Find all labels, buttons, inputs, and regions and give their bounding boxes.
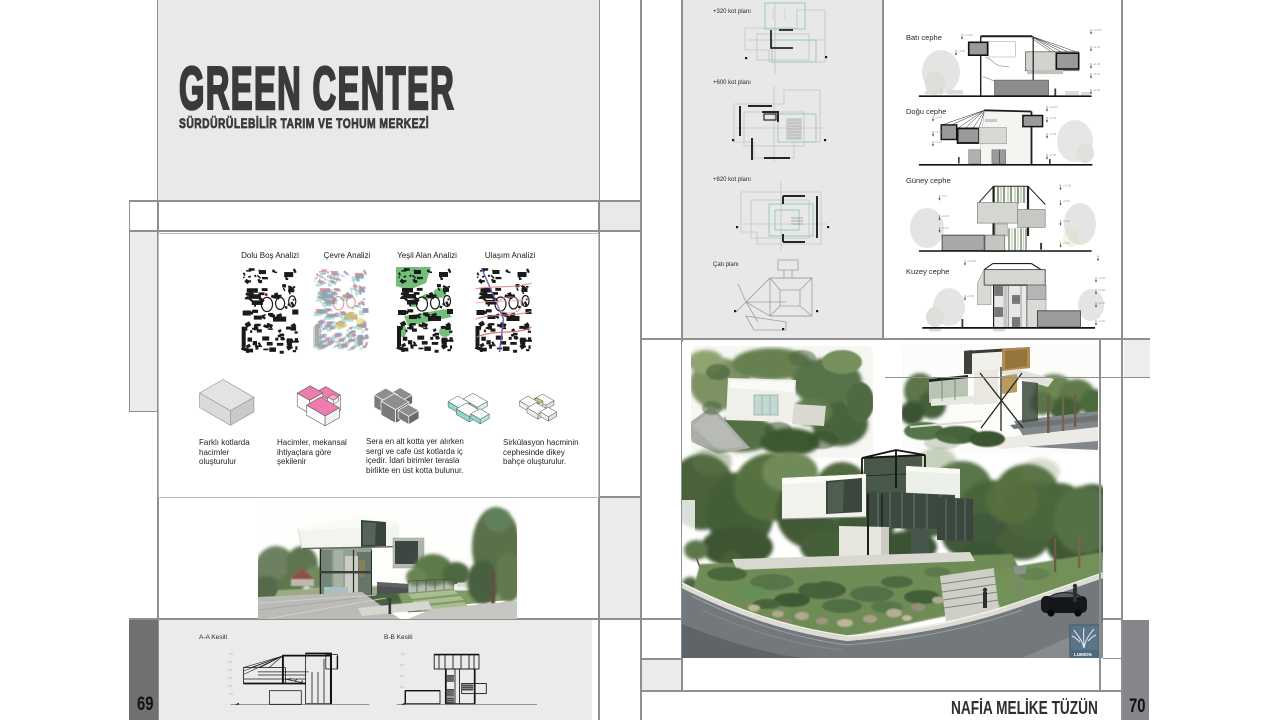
svg-text:+9.20: +9.20 <box>1063 199 1071 203</box>
svg-text:+6.00: +6.00 <box>1063 219 1071 223</box>
svg-text:+12.60: +12.60 <box>1049 105 1058 109</box>
svg-text:+0.00: +0.00 <box>1098 319 1105 323</box>
svg-text:+3.20: +3.20 <box>1098 301 1105 305</box>
svg-text:+6.00: +6.00 <box>942 214 950 218</box>
svg-text:+6.00: +6.00 <box>1098 288 1105 292</box>
svg-text:+3.20: +3.20 <box>1093 72 1101 76</box>
svg-text:+12.60: +12.60 <box>1063 184 1072 188</box>
svg-text:+6.00: +6.00 <box>967 294 975 298</box>
svg-text:+0.00: +0.00 <box>1093 88 1101 92</box>
svg-text:+6.00: +6.00 <box>1049 132 1057 136</box>
svg-text:+12.60: +12.60 <box>964 33 973 37</box>
svg-text:+6.00: +6.00 <box>1093 62 1101 66</box>
svg-text:LUMION: LUMION <box>1074 652 1092 657</box>
svg-text:+0.00: +0.00 <box>1049 153 1057 157</box>
svg-text:+12.60: +12.60 <box>1093 28 1102 32</box>
svg-text:+0.00: +0.00 <box>1063 241 1071 245</box>
svg-text:+3.20: +3.20 <box>935 140 943 144</box>
svg-text:+6.00: +6.00 <box>935 130 943 134</box>
svg-text:+12.60: +12.60 <box>967 259 976 263</box>
svg-text:+9.4: +9.4 <box>942 194 948 198</box>
svg-text:+9.20: +9.20 <box>1098 276 1105 280</box>
svg-text:+9.20: +9.20 <box>1093 45 1101 49</box>
svg-text:+9.20: +9.20 <box>958 49 966 53</box>
svg-text:+3.20: +3.20 <box>942 226 950 230</box>
svg-text:+9.20: +9.20 <box>935 115 943 119</box>
svg-text:+9.20: +9.20 <box>1049 116 1057 120</box>
